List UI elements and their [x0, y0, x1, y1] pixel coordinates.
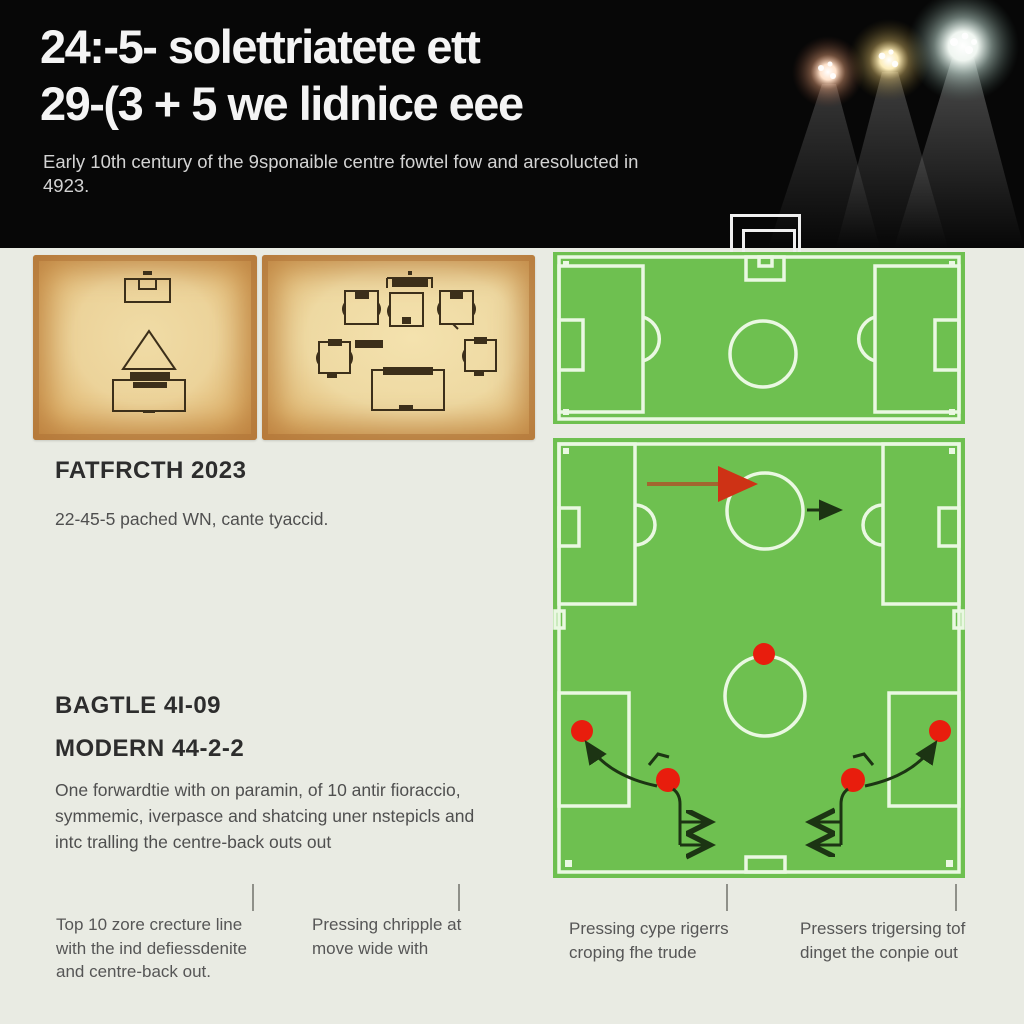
- squad-layout-sketch: [262, 255, 535, 440]
- red-player-dot-right-wide: [929, 720, 951, 742]
- caption-2-line-2: move wide with: [312, 937, 492, 961]
- caption-divider-3: [726, 884, 728, 911]
- red-player-dot-left-inner: [656, 768, 680, 792]
- unit-label: [328, 339, 342, 346]
- section-heading-history: FATFRCTH 2023: [55, 457, 246, 485]
- caption-4-line-1: Pressers trigersing tof: [800, 917, 990, 941]
- tactics-infographic: 24:-5- solettriatete ett 29-(3 + 5 we li…: [0, 0, 1024, 1024]
- sketch-label-bar-1: [130, 372, 170, 379]
- unit-label: [355, 292, 369, 299]
- corner-mark: [565, 860, 572, 867]
- base-rect: [372, 370, 444, 410]
- sketch-goal-box: [125, 279, 170, 302]
- caption-2-line-1: Pressing chripple at: [312, 913, 492, 937]
- base-label-bottom: [399, 405, 413, 409]
- title-line-1: 24:-5- solettriatete ett: [40, 18, 523, 75]
- sketch-label-bottom: [143, 410, 155, 413]
- parchment-ancient-formation: [33, 255, 257, 440]
- floodlight-white-icon: [907, 0, 1019, 102]
- pitch-turf: [553, 252, 965, 424]
- caption-divider-1: [252, 884, 254, 911]
- unit-tabs: [317, 352, 352, 364]
- unit-label: [327, 373, 337, 378]
- caption-divider-2: [458, 884, 460, 911]
- unit-label: [474, 337, 487, 344]
- modern-paragraph-line-3: intc tralling the centre-back outs out: [55, 829, 474, 855]
- unit-tabs: [438, 303, 475, 329]
- sketch-label-top: [143, 271, 152, 275]
- corner-mark: [563, 448, 569, 454]
- section-heading-modern: MODERN 44-2-2: [55, 735, 244, 763]
- caption-4-line-2: dinget the conpie out: [800, 941, 990, 965]
- subtitle-line-1: Early 10th century of the 9sponaible cen…: [43, 150, 638, 174]
- label-bar-top: [392, 279, 428, 287]
- unit-square: [319, 342, 350, 373]
- sketch-label-bar-2: [133, 382, 167, 388]
- side-label-bar: [355, 340, 383, 348]
- caption-4: Pressers trigersing tof dinget the conpi…: [800, 917, 990, 964]
- modern-paragraph-line-2: symmemic, iverpasce and shatcing uner ns…: [55, 803, 474, 829]
- caption-1: Top 10 zore crecture line with the ind d…: [56, 913, 266, 984]
- sketch-triangle: [123, 331, 175, 369]
- pitch-diagram-pressing: [553, 438, 965, 878]
- stadium-lights: [758, 0, 1024, 248]
- caption-1-line-3: and centre-back out.: [56, 960, 266, 984]
- base-label-bar: [383, 367, 433, 375]
- red-player-dot-center: [753, 643, 775, 665]
- parchment-squad-layout: [262, 255, 535, 440]
- unit-tabs: [343, 303, 380, 315]
- ancient-formation-sketch: [33, 255, 257, 440]
- page-subtitle: Early 10th century of the 9sponaible cen…: [43, 150, 638, 198]
- corner-mark: [946, 860, 953, 867]
- corner-mark: [949, 448, 955, 454]
- modern-paragraph-line-1: One forwardtie with on paramin, of 10 an…: [55, 777, 474, 803]
- unit-label: [474, 371, 484, 376]
- subtitle-line-2: 4923.: [43, 174, 638, 198]
- history-body: 22-45-5 pached WN, cante tyaccid.: [55, 506, 328, 532]
- caption-1-line-2: with the ind defiessdenite: [56, 937, 266, 961]
- red-player-dot-left-wide: [571, 720, 593, 742]
- caption-3-line-2: croping fhe trude: [569, 941, 749, 965]
- page-title: 24:-5- solettriatete ett 29-(3 + 5 we li…: [40, 18, 523, 132]
- unit-square: [465, 340, 496, 371]
- tiny-mark: [408, 271, 412, 275]
- sketch-goal-notch: [139, 279, 156, 289]
- unit-label: [402, 317, 411, 324]
- caption-1-line-1: Top 10 zore crecture line: [56, 913, 266, 937]
- title-line-2: 29-(3 + 5 we lidnice eee: [40, 75, 523, 132]
- caption-divider-4: [955, 884, 957, 911]
- pitch-diagram-top: [553, 252, 965, 424]
- modern-paragraph: One forwardtie with on paramin, of 10 an…: [55, 777, 474, 855]
- unit-label: [450, 292, 463, 299]
- caption-2: Pressing chripple at move wide with: [312, 913, 492, 960]
- section-heading-battle: BAGTLE 4I-09: [55, 692, 221, 720]
- red-player-dot-right-inner: [841, 768, 865, 792]
- caption-3-line-1: Pressing cype rigerrs: [569, 917, 749, 941]
- caption-3: Pressing cype rigerrs croping fhe trude: [569, 917, 749, 964]
- header-banner: 24:-5- solettriatete ett 29-(3 + 5 we li…: [0, 0, 1024, 248]
